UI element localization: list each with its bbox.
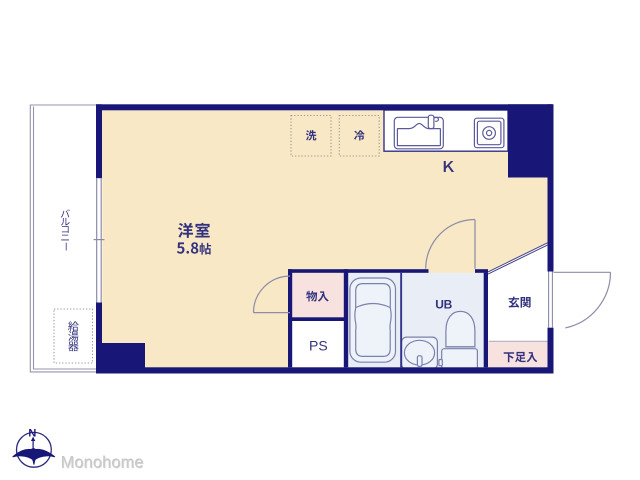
svg-text:UB: UB (435, 298, 452, 312)
svg-text:N: N (28, 428, 36, 440)
svg-text:PS: PS (309, 338, 328, 354)
